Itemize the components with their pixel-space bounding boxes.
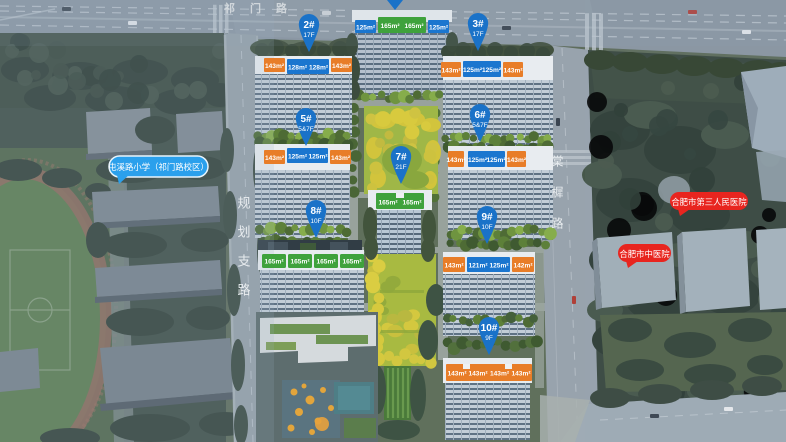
- svg-text:125m²: 125m²: [468, 157, 488, 164]
- svg-text:6#: 6#: [474, 110, 486, 121]
- svg-text:5&7F: 5&7F: [472, 122, 488, 129]
- svg-text:5#: 5#: [300, 114, 312, 125]
- svg-text:143m²: 143m²: [503, 67, 523, 74]
- svg-text:143m²: 143m²: [468, 371, 488, 378]
- svg-text:121m²: 121m²: [468, 262, 488, 269]
- svg-text:祁门路: 祁门路: [224, 1, 302, 15]
- svg-text:143m²: 143m²: [511, 371, 531, 378]
- svg-text:165m²: 165m²: [378, 199, 398, 206]
- svg-text:165m²: 165m²: [290, 259, 310, 266]
- svg-text:21F: 21F: [395, 164, 406, 171]
- svg-text:棠樨路: 棠樨路: [550, 155, 564, 248]
- svg-text:合肥市中医院: 合肥市中医院: [619, 249, 670, 259]
- svg-text:125m²: 125m²: [288, 153, 308, 160]
- svg-text:165m²: 165m²: [402, 199, 422, 206]
- svg-text:165m²: 165m²: [404, 23, 424, 30]
- svg-text:143m²: 143m²: [331, 155, 351, 162]
- svg-text:9#: 9#: [481, 212, 493, 223]
- svg-text:125m²: 125m²: [486, 157, 506, 164]
- svg-text:143m²: 143m²: [447, 371, 467, 378]
- svg-text:10#: 10#: [481, 323, 498, 334]
- svg-text:143m²: 143m²: [265, 155, 285, 162]
- svg-text:142m²: 142m²: [513, 262, 533, 269]
- svg-text:3#: 3#: [472, 19, 484, 30]
- svg-text:125m²: 125m²: [482, 67, 502, 74]
- svg-text:屯溪路小学（祁门路校区）: 屯溪路小学（祁门路校区）: [108, 162, 209, 172]
- svg-text:125m²: 125m²: [356, 25, 376, 32]
- svg-text:10F: 10F: [481, 224, 492, 231]
- svg-text:165m²: 165m²: [316, 259, 336, 266]
- svg-text:7#: 7#: [395, 152, 407, 163]
- svg-text:143m²: 143m²: [444, 262, 464, 269]
- svg-text:125m²: 125m²: [429, 25, 449, 32]
- svg-text:165m²: 165m²: [380, 23, 400, 30]
- svg-text:143m²: 143m²: [490, 371, 510, 378]
- svg-text:143m²: 143m²: [332, 63, 352, 70]
- svg-text:125m²: 125m²: [308, 153, 328, 160]
- svg-text:128m²: 128m²: [288, 64, 308, 71]
- svg-text:165m²: 165m²: [342, 259, 362, 266]
- svg-text:9F: 9F: [485, 335, 493, 342]
- svg-text:17F: 17F: [303, 32, 314, 39]
- svg-text:143m²: 143m²: [265, 63, 285, 70]
- svg-text:8#: 8#: [310, 206, 322, 217]
- svg-text:125m²: 125m²: [463, 67, 483, 74]
- svg-text:5&7F: 5&7F: [298, 126, 314, 133]
- svg-text:17F: 17F: [472, 31, 483, 38]
- svg-text:143m²: 143m²: [441, 67, 461, 74]
- svg-text:143m²: 143m²: [446, 157, 466, 164]
- svg-text:2#: 2#: [303, 20, 315, 31]
- svg-text:128m²: 128m²: [309, 64, 329, 71]
- svg-text:143m²: 143m²: [507, 157, 527, 164]
- svg-text:125m²: 125m²: [489, 262, 509, 269]
- svg-text:165m²: 165m²: [264, 259, 284, 266]
- svg-text:规划支路: 规划支路: [236, 196, 251, 312]
- svg-text:合肥市第三人民医院: 合肥市第三人民医院: [671, 197, 747, 207]
- svg-text:10F: 10F: [310, 218, 321, 225]
